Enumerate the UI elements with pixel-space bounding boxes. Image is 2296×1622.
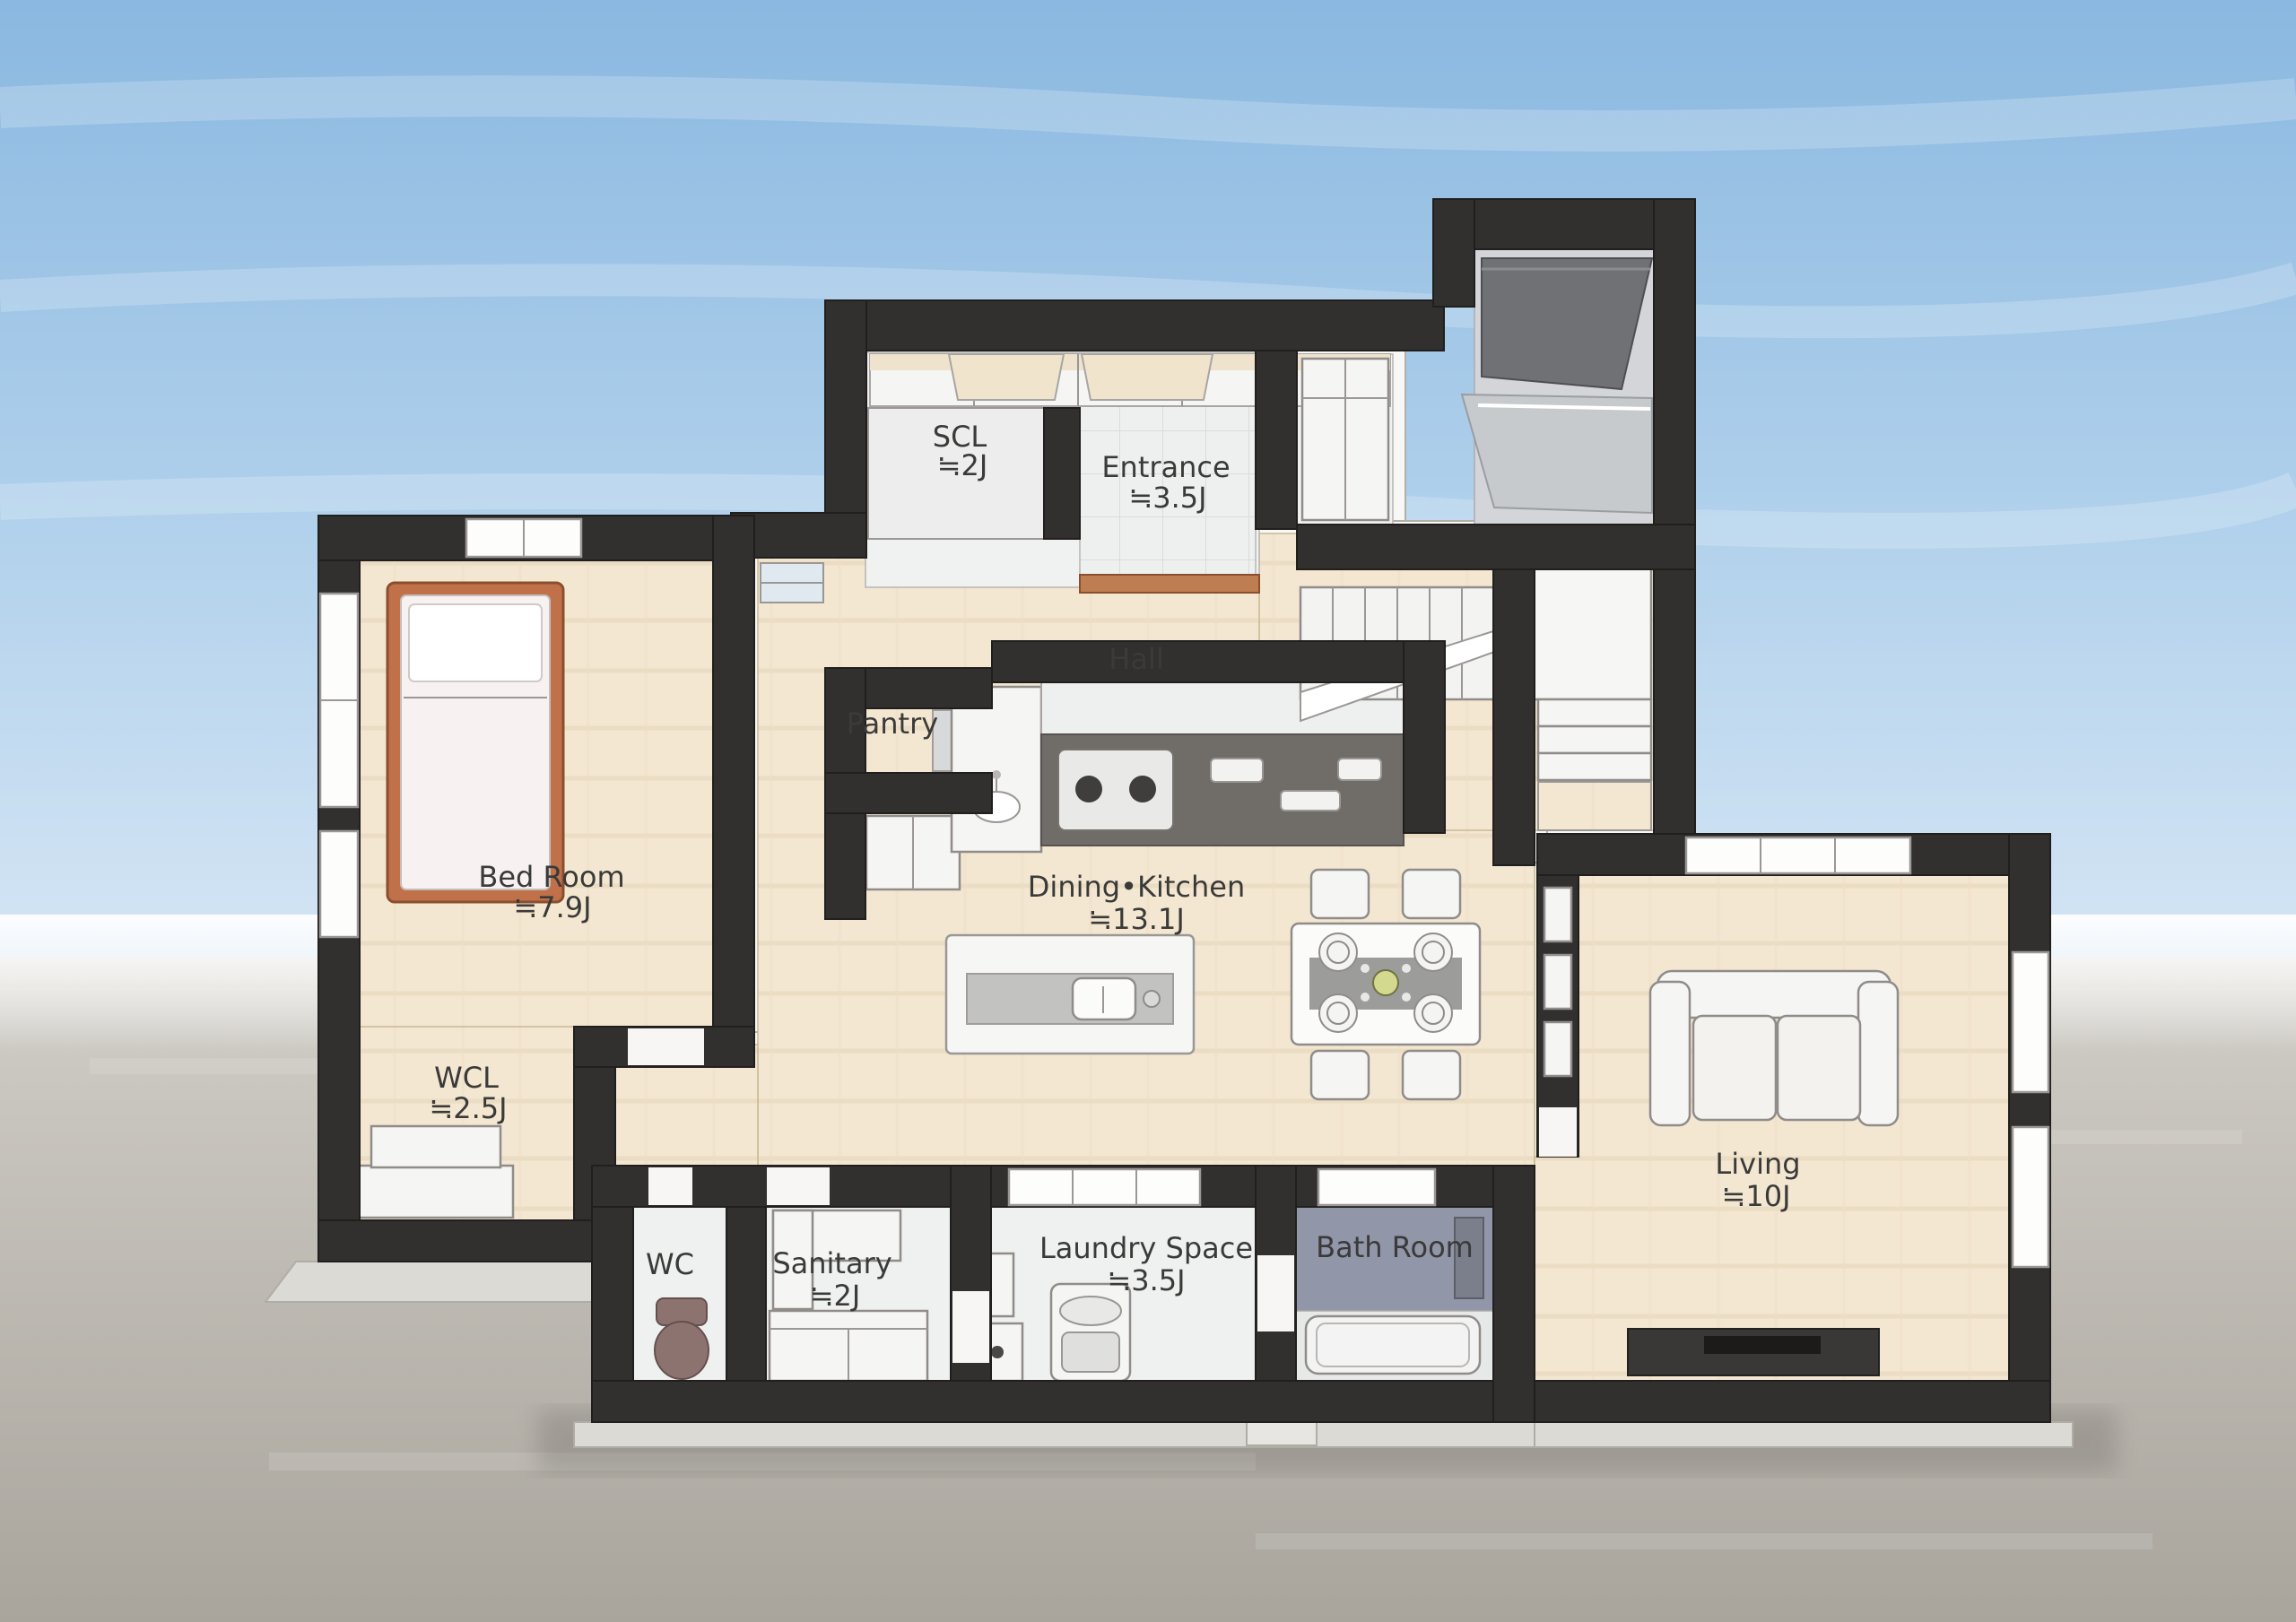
living-wall-niche-shelves [1544,888,1571,1076]
porch-roof-upper [1482,258,1652,389]
wall [992,641,1405,682]
dish [1281,791,1340,811]
stair-step [1538,753,1651,780]
sofa-cushion [1778,1016,1860,1120]
bathroom-door [1257,1255,1294,1331]
living-side-window [2013,952,2048,1092]
dining-chair [1311,870,1369,918]
wall [1256,351,1297,529]
dish [1211,759,1263,782]
porch-roof-lower [1462,395,1652,513]
room-label-pantry: Pantry [847,707,938,741]
wall [592,1381,1535,1422]
sofa-armrest [1858,982,1898,1125]
room-label-bathroom: Bath Room [1316,1230,1474,1264]
wall-niche-shelf [1544,1022,1571,1076]
tv [1704,1336,1821,1354]
tv-board [1628,1329,1879,1375]
wall [1297,525,1695,569]
laundry-door [952,1291,989,1363]
stair-step [1538,726,1651,753]
stair-lower-landing [1538,782,1651,830]
knob-icon [991,1346,1004,1358]
burner-icon [1075,776,1102,802]
wall [825,813,865,919]
wall [1404,641,1445,833]
wcl-shelf-step [371,1126,500,1167]
entrance-wood-step [1080,575,1259,593]
sofa [1650,971,1898,1125]
wall [825,300,1444,351]
dish [1338,759,1381,780]
bed [387,583,563,902]
foundation-apron [1535,1422,2073,1447]
room-label-entrance: Entrance [1101,450,1230,484]
floor-plan-canvas: SCL ≒2J Entrance ≒3.5J Hall Pantry Bed R… [0,0,2296,1622]
bedroom-door [628,1028,704,1065]
glass-console [761,563,823,603]
wall-niche-shelf [1544,888,1571,941]
washer-lid [1060,1297,1121,1325]
sofa-cushion [1693,1016,1776,1120]
room-size-living: ≒10J [1722,1179,1791,1213]
dining-chair [1403,870,1460,918]
toilet [655,1298,709,1379]
sofa-armrest [1650,982,1690,1125]
outdoor-step [1247,1422,1317,1445]
dining-chair [1311,1051,1369,1099]
kitchen-counter [1041,682,1404,846]
washing-machine [1051,1284,1130,1381]
room-label-bedroom: Bed Room [478,860,624,894]
wall [1433,199,1474,307]
foundation-apron [574,1422,1547,1447]
wall [1044,408,1080,539]
room-label-hall: Hall [1109,642,1163,676]
room-size-bedroom: ≒7.9J [513,890,591,924]
wall [1654,199,1695,834]
wall [1493,569,1535,865]
wall [1493,1166,1535,1422]
bathroom-window [1318,1169,1435,1205]
bathtub [1306,1316,1480,1374]
wall-niche-shelf [1544,955,1571,1009]
pantry-cabinet [866,816,960,889]
transom-window [949,354,1064,400]
burner-icon [1129,776,1156,802]
wc-door [648,1167,692,1205]
room-label-sanitary: Sanitary [772,1246,891,1280]
wash-basin-cabinet [952,687,1041,852]
room-size-wcl: ≒2.5J [429,1091,507,1125]
dining-chair [1403,1051,1460,1099]
room-size-laundry: ≒3.5J [1107,1263,1185,1297]
faucet-icon [1144,991,1160,1007]
room-label-living: Living [1715,1147,1800,1181]
wall [726,1207,766,1381]
room-size-entrance: ≒3.5J [1128,481,1206,515]
living-door [1539,1107,1577,1157]
sanitary-door [767,1167,830,1205]
wall [1535,1381,2050,1422]
living-floor [1535,875,2009,1381]
room-size-dining-kitchen: ≒13.1J [1088,902,1185,936]
wcl-shelf-step [359,1166,513,1218]
wall [318,1220,615,1262]
wall [713,516,754,1045]
floor-plan-rendering: SCL ≒2J Entrance ≒3.5J Hall Pantry Bed R… [0,0,2296,1622]
room-label-wc: WC [646,1247,694,1281]
room-label-laundry: Laundry Space [1039,1231,1253,1265]
living-side-window [2013,1127,2048,1267]
pillow [409,604,542,681]
sofa-back [1657,971,1891,1018]
laundry-window [1009,1169,1200,1205]
wall [825,773,992,813]
kitchen-island [946,935,1194,1054]
table-centerpiece [1373,970,1398,995]
transom-window [1082,354,1213,400]
bedroom-side-window [320,831,358,937]
room-size-scl: ≒2J [937,448,988,482]
room-label-wcl: WCL [434,1061,499,1095]
shoe-closet [1302,359,1388,520]
living-top-window [1686,837,1910,873]
stair-step [1538,699,1651,726]
room-size-sanitary: ≒2J [810,1279,861,1313]
wall [825,300,866,544]
room-label-dining-kitchen: Dining•Kitchen [1028,870,1245,904]
